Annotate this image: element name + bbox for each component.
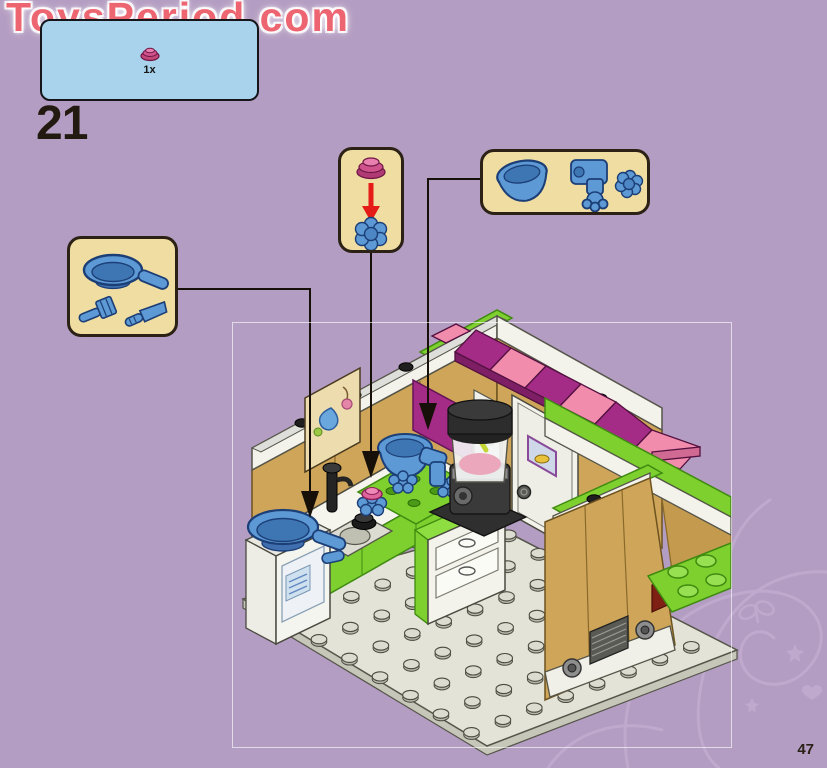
callout-utensils: [67, 236, 178, 337]
heart-icon: [802, 685, 822, 700]
blue-frying-pan-icon: [84, 255, 170, 291]
instruction-page: ToysPeriod.com 1x 21: [0, 0, 827, 768]
callout-mixer-parts: [480, 149, 650, 215]
placement-arrow: [362, 183, 380, 222]
blue-flower-plate-icon: [616, 171, 643, 198]
dark-pink-cupcake-bowl-icon: [137, 45, 163, 63]
blue-flower-plate-icon: [356, 218, 387, 251]
blue-mixing-bowl-icon: [495, 157, 551, 205]
blue-knife-icon: [123, 300, 168, 329]
page-number: 47: [797, 741, 814, 758]
blue-mixer-arm-icon: [571, 160, 608, 212]
callout-bowl-on-flower: [338, 147, 404, 253]
star-icon: [786, 644, 804, 662]
dark-pink-cupcake-bowl-icon: [357, 158, 385, 179]
illustration-frame: [232, 322, 732, 748]
quantity-label: 1x: [143, 64, 155, 76]
step-number: 21: [36, 96, 87, 151]
new-parts-panel: 1x: [40, 19, 259, 101]
star-icon: [745, 698, 759, 713]
blue-fork-icon: [76, 296, 117, 327]
